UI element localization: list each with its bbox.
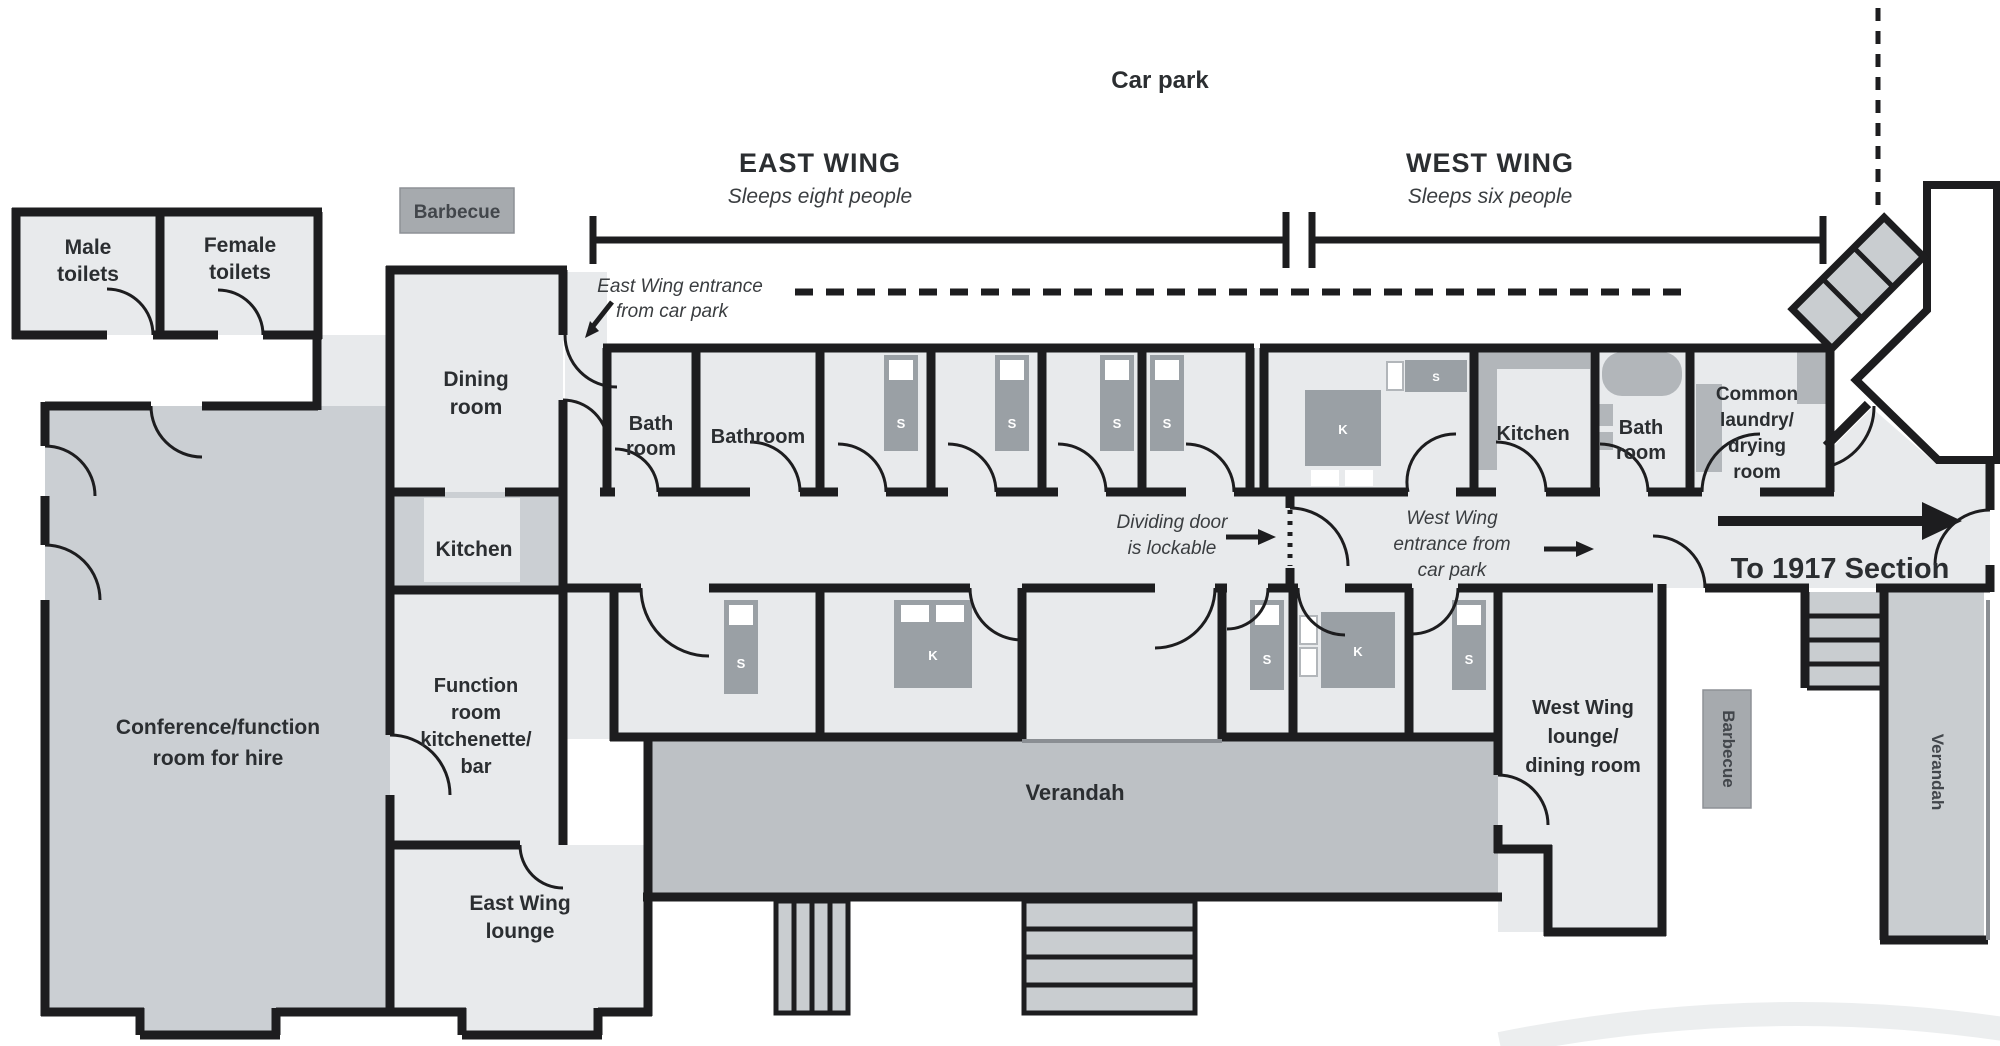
wing-dimension-bracket xyxy=(593,212,1823,268)
bed-single-5: S xyxy=(724,600,758,694)
label-laundry-2: laundry/ xyxy=(1720,410,1795,431)
label-function-3: kitchenette/ xyxy=(420,729,532,751)
bed-single-horizontal: S xyxy=(1387,360,1467,392)
bed-letter: S xyxy=(1163,416,1172,431)
bed-letter: S xyxy=(1465,652,1474,667)
bathroom-fixture xyxy=(1598,432,1613,450)
laundry-machine xyxy=(1797,346,1829,404)
label-west-lounge-3: dining room xyxy=(1525,755,1641,777)
connector-corridor xyxy=(319,335,390,410)
label-laundry-1: Common xyxy=(1716,384,1798,405)
label-west-wing: WEST WING xyxy=(1406,148,1574,178)
label-conference-2: room for hire xyxy=(153,747,284,770)
label-function-1: Function xyxy=(434,675,518,697)
label-east-wing-sub: Sleeps eight people xyxy=(728,185,912,208)
bed-letter: S xyxy=(1432,372,1439,384)
label-female-toilets-1: Female xyxy=(204,234,276,257)
floor-plan-page: S S S S K S S xyxy=(0,0,2000,1046)
bed-letter: S xyxy=(897,416,906,431)
bed-single-1: S xyxy=(884,355,918,451)
label-male-toilets-1: Male xyxy=(65,236,112,259)
label-kitchen-main: Kitchen xyxy=(435,538,512,561)
label-west-entrance-2: entrance from xyxy=(1393,534,1510,555)
label-bath-west-1: Bath xyxy=(1619,417,1663,439)
label-laundry-4: room xyxy=(1733,462,1781,483)
label-west-entrance-3: car park xyxy=(1418,560,1488,581)
label-west-lounge-2: lounge/ xyxy=(1547,726,1619,748)
label-east-entrance-1: East Wing entrance xyxy=(597,276,763,297)
bed-single-2: S xyxy=(995,355,1029,451)
label-bathroom-east: Bathroom xyxy=(711,426,805,448)
label-male-toilets-2: toilets xyxy=(57,263,119,286)
bed-single-3: S xyxy=(1100,355,1134,451)
label-east-wing: EAST WING xyxy=(739,148,901,178)
bed-letter: K xyxy=(928,648,938,663)
label-function-2: room xyxy=(451,702,501,724)
bathroom-fixture xyxy=(1598,404,1613,426)
label-verandah-main: Verandah xyxy=(1025,780,1124,805)
decorative-swoosh xyxy=(1500,1014,2000,1044)
label-dividing-2: is lockable xyxy=(1128,538,1217,559)
bed-letter: K xyxy=(1338,422,1348,437)
verandah-main xyxy=(648,741,1498,897)
bed-letter: S xyxy=(1008,416,1017,431)
label-west-entrance-1: West Wing xyxy=(1406,508,1498,529)
bed-letter: S xyxy=(737,656,746,671)
bed-single-4: S xyxy=(1150,355,1184,451)
label-east-lounge-2: lounge xyxy=(486,920,555,943)
label-bath-east-1: Bath xyxy=(629,413,673,435)
bed-letter: S xyxy=(1113,416,1122,431)
lounge-passage xyxy=(563,588,614,739)
kitchen-counter-side xyxy=(1478,352,1497,470)
label-verandah-side: Verandah xyxy=(1928,734,1947,811)
label-barbecue-side: Barbecue xyxy=(1719,710,1738,787)
label-west-lounge-1: West Wing xyxy=(1532,697,1634,719)
label-dividing-1: Dividing door xyxy=(1117,512,1229,533)
label-bath-east-2: room xyxy=(626,438,676,460)
label-west-wing-sub: Sleeps six people xyxy=(1408,185,1573,208)
label-car-park: Car park xyxy=(1111,67,1209,94)
label-conference-1: Conference/function xyxy=(116,716,320,739)
label-east-entrance-2: from car park xyxy=(616,301,729,322)
label-function-4: bar xyxy=(460,756,491,778)
label-east-lounge-1: East Wing xyxy=(469,892,570,915)
floor-plan-drawing: S S S S K S S xyxy=(0,0,2000,1046)
label-dining-2: room xyxy=(450,396,503,419)
label-bath-west-2: room xyxy=(1616,442,1666,464)
room-conference xyxy=(45,406,390,1012)
bed-letter: S xyxy=(1263,652,1272,667)
label-barbecue-top: Barbecue xyxy=(414,202,501,223)
bed-letter: K xyxy=(1353,644,1363,659)
bed-king-east-bottom: K xyxy=(894,600,972,688)
label-dining-1: Dining xyxy=(443,368,508,391)
label-kitchen-west: Kitchen xyxy=(1496,423,1569,445)
bed-single-6: S xyxy=(1250,600,1284,690)
label-female-toilets-2: toilets xyxy=(209,261,271,284)
bed-single-7: S xyxy=(1452,600,1486,690)
label-laundry-3: drying xyxy=(1728,436,1786,457)
bathtub xyxy=(1602,352,1682,396)
label-to-1917: To 1917 Section xyxy=(1731,553,1950,585)
